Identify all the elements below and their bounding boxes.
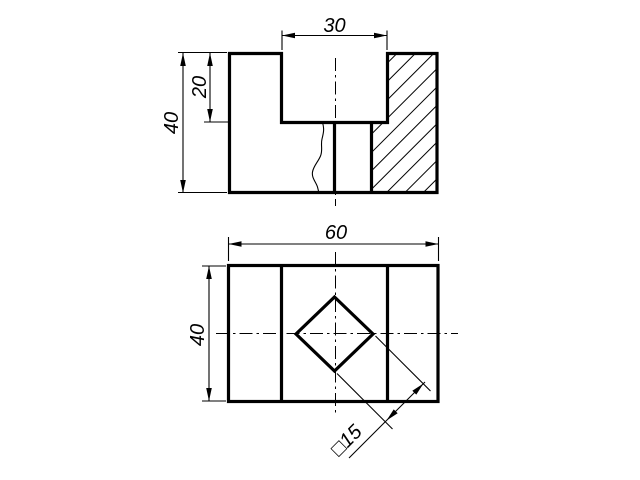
paper-background bbox=[0, 0, 640, 480]
drawing-sheet: 30 20 40 bbox=[0, 0, 640, 480]
dim-value-20: 20 bbox=[189, 76, 211, 99]
dim-value-40: 40 bbox=[161, 112, 183, 134]
engineering-drawing: 30 20 40 bbox=[0, 0, 640, 480]
dim-value-30: 30 bbox=[323, 15, 345, 37]
dim-value-60: 60 bbox=[325, 222, 347, 244]
dim-value-40-plan: 40 bbox=[187, 324, 209, 346]
